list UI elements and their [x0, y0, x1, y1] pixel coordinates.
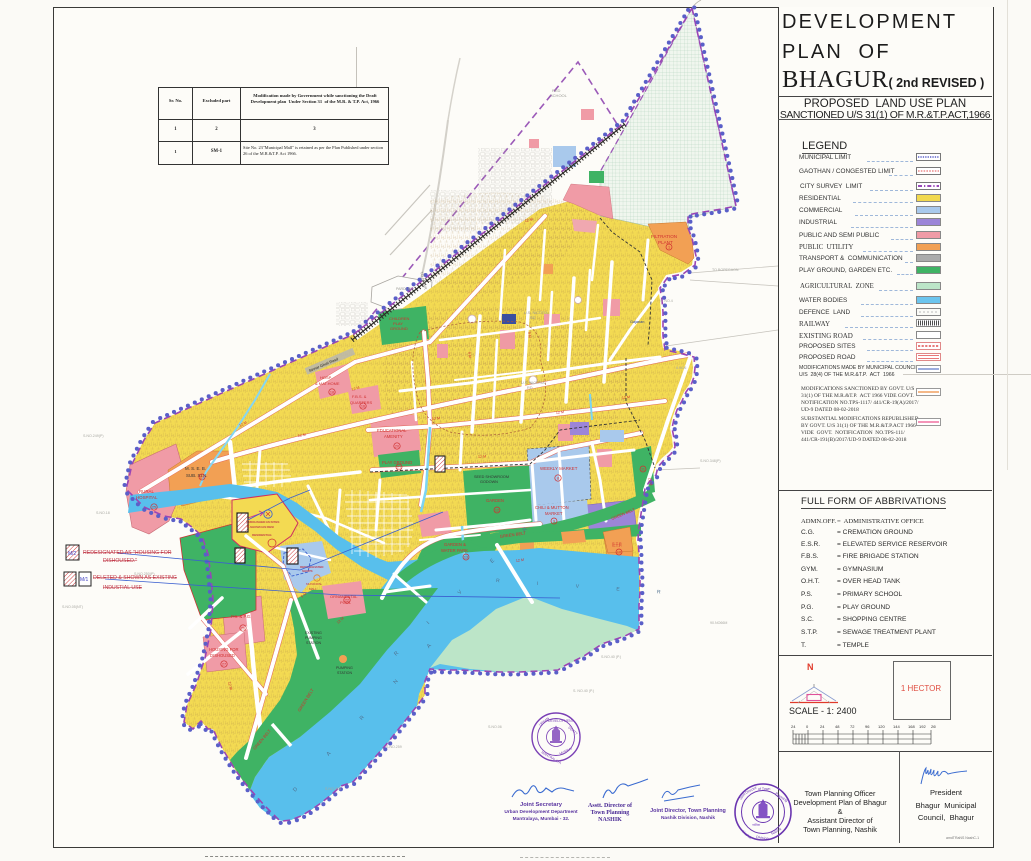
svg-text:Nashik Division, Nashik: Nashik Division, Nashik: [661, 815, 715, 821]
svg-text:MARKET: MARKET: [545, 511, 563, 516]
svg-text:RESIDENTIAL: RESIDENTIAL: [252, 533, 272, 537]
svg-text:12 M: 12 M: [432, 416, 441, 421]
svg-text:192: 192: [919, 724, 926, 729]
svg-text:S.NO.258: S.NO.258: [325, 787, 341, 791]
svg-text:S. NO.4: S. NO.4: [660, 299, 673, 303]
svg-text:20: 20: [395, 445, 399, 449]
svg-text:WEEKLY MARKET: WEEKLY MARKET: [540, 466, 578, 471]
svg-text:CHILI & MUTTON: CHILI & MUTTON: [535, 505, 569, 510]
svg-text:Urban Development Department: Urban Development Department: [504, 809, 578, 815]
svg-text:1: 1: [668, 246, 670, 250]
svg-text:S.NO.259: S.NO.259: [386, 745, 402, 749]
svg-text:MUNICIPAL: MUNICIPAL: [306, 582, 322, 586]
svg-text:9 M: 9 M: [527, 332, 532, 339]
svg-text:RURAL: RURAL: [139, 489, 154, 494]
svg-text:DEPTT: DEPTT: [567, 726, 578, 736]
svg-text:RD: RD: [527, 386, 533, 390]
svg-text:M. S. E. B.: M. S. E. B.: [185, 466, 206, 471]
svg-text:90.NO66M: 90.NO66M: [710, 621, 727, 625]
svg-text:TO BOPEGAON: TO BOPEGAON: [712, 268, 739, 272]
svg-text:PLAY GROUND: PLAY GROUND: [382, 460, 412, 465]
svg-text:168: 168: [908, 724, 915, 729]
svg-text:23: 23: [200, 476, 204, 480]
svg-text:GODOWN: GODOWN: [480, 480, 498, 484]
svg-text:18: 18: [330, 391, 334, 395]
svg-text:24: 24: [791, 724, 796, 729]
svg-text:12 M: 12 M: [478, 455, 486, 459]
svg-text:8.NO6: 8.NO6: [676, 366, 686, 370]
svg-text:M/1: M/1: [80, 577, 89, 583]
svg-text:S.T.P.: S.T.P.: [612, 543, 622, 548]
svg-text:Gajanan: Gajanan: [630, 320, 644, 324]
svg-text:P.S. & P.G.: P.S. & P.G.: [231, 614, 251, 619]
svg-text:U.S. NICOTIA: U.S. NICOTIA: [524, 311, 548, 315]
svg-text:12 M: 12 M: [245, 520, 250, 529]
svg-text:SHOWN AS RESI: SHOWN AS RESI: [250, 525, 274, 529]
svg-text:DEVELOPMENT: DEVELOPMENT: [548, 719, 574, 723]
svg-text:STATION: STATION: [306, 641, 321, 645]
svg-text:Joint Secretary: Joint Secretary: [520, 802, 563, 808]
svg-text:M/2: M/2: [68, 551, 77, 557]
svg-text:25: 25: [152, 506, 156, 510]
svg-text:S.NO.40 (P.): S.NO.40 (P.): [601, 655, 621, 659]
svg-text:22: 22: [345, 599, 349, 603]
svg-text:12: 12: [495, 509, 499, 513]
svg-text:& MAT.HOME: & MAT.HOME: [315, 381, 340, 386]
svg-text:INDUSTIAL USE: INDUSTIAL USE: [103, 585, 143, 591]
svg-text:EXISTING: EXISTING: [305, 631, 322, 635]
svg-text:U.S. NICOTIA: U.S. NICOTIA: [521, 381, 545, 385]
svg-text:144: 144: [893, 724, 900, 729]
svg-text:72: 72: [850, 724, 855, 729]
svg-text:GARDEN: GARDEN: [486, 498, 504, 503]
svg-text:48: 48: [835, 724, 840, 729]
svg-text:F.B.S. &: F.B.S. &: [352, 394, 367, 399]
svg-text:NASHIK: NASHIK: [598, 817, 622, 823]
svg-text:96: 96: [865, 724, 870, 729]
svg-text:WATER PARK: WATER PARK: [441, 548, 468, 553]
svg-text:ABOLISHED AS SITES: ABOLISHED AS SITES: [248, 520, 279, 524]
svg-text:PUMPING: PUMPING: [305, 636, 322, 640]
svg-text:16: 16: [361, 405, 365, 409]
svg-text:S.NO.250(P): S.NO.250(P): [134, 572, 155, 576]
svg-text:HOSP.: HOSP.: [320, 375, 332, 380]
svg-text:Joint Director, Town Planning: Joint Director, Town Planning: [650, 808, 726, 814]
svg-text:S. NO.40 (P.): S. NO.40 (P.): [573, 689, 594, 693]
svg-text:MUMBAI: MUMBAI: [559, 747, 573, 756]
svg-text:PARDI RD.: PARDI RD.: [396, 287, 414, 291]
svg-text:9: 9: [553, 520, 555, 524]
svg-text:STATION: STATION: [337, 671, 352, 675]
svg-text:Town Planning: Town Planning: [591, 810, 630, 816]
svg-text:10: 10: [617, 551, 621, 555]
svg-text:GARDEN &: GARDEN &: [444, 542, 466, 547]
svg-text:27: 27: [222, 663, 226, 667]
svg-text:RD: RD: [530, 316, 536, 320]
svg-text:DISHOUSED.": DISHOUSED.": [103, 558, 137, 564]
svg-text:EDUCATIONAL: EDUCATIONAL: [377, 428, 407, 433]
svg-text:S.NO.249(P): S.NO.249(P): [83, 434, 104, 438]
svg-text:AMENITY: AMENITY: [384, 434, 403, 439]
svg-text:FILTRATION: FILTRATION: [651, 234, 677, 239]
svg-text:SEED SHOWROOM: SEED SHOWROOM: [474, 475, 509, 479]
svg-text:S.NO.06: S.NO.06: [488, 725, 502, 729]
svg-text:265: 265: [931, 724, 936, 729]
svg-text:MALL: MALL: [309, 587, 317, 591]
svg-text:SHOPS: SHOPS: [302, 569, 313, 573]
svg-text:11: 11: [641, 468, 645, 472]
svg-text:26: 26: [241, 627, 245, 631]
svg-text:PUMPING: PUMPING: [336, 666, 353, 670]
svg-text:21: 21: [397, 466, 401, 470]
svg-text:8: 8: [557, 477, 559, 481]
svg-text:S.NO.05(NT): S.NO.05(NT): [62, 605, 83, 609]
svg-text:13: 13: [464, 556, 468, 560]
svg-text:120: 120: [878, 724, 885, 729]
svg-text:GROUND: GROUND: [390, 326, 408, 331]
svg-text:REDESIGNATED AS "HOUSING FOR: REDESIGNATED AS "HOUSING FOR: [83, 550, 172, 556]
svg-text:S.NO.18: S.NO.18: [96, 511, 110, 515]
svg-text:24: 24: [820, 724, 825, 729]
svg-text:DISHOUSED: DISHOUSED: [210, 653, 235, 658]
svg-text:0: 0: [806, 724, 809, 729]
svg-text:S.NO.348(P): S.NO.348(P): [700, 459, 721, 463]
svg-text:Asstt. Director of: Asstt. Director of: [588, 803, 633, 809]
svg-text:Mantralaya, Mumbai - 32.: Mantralaya, Mumbai - 32.: [513, 816, 570, 822]
svg-text:HOUSING FOR: HOUSING FOR: [209, 647, 239, 652]
svg-text:HOSPITAL: HOSPITAL: [136, 495, 158, 500]
svg-text:SCHOOL: SCHOOL: [550, 93, 568, 98]
